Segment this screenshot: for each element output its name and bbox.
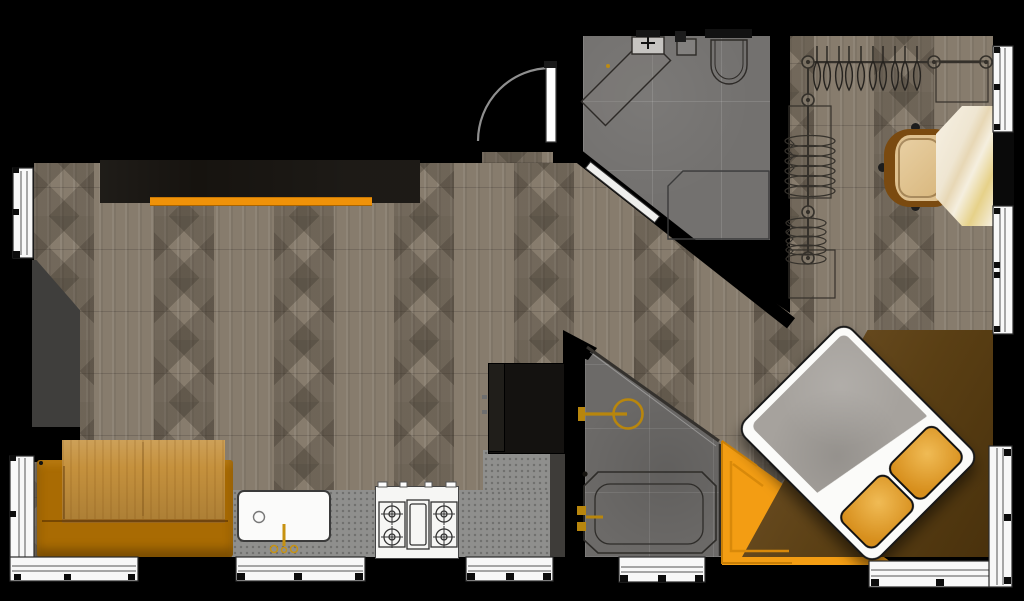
- wall-bathroom-top-right: [770, 33, 790, 241]
- wall-right-band: [993, 0, 1024, 601]
- cabinet-orange-bar: [150, 197, 372, 206]
- wall-top-left-block: [0, 0, 585, 163]
- entry-threshold: [482, 152, 553, 163]
- wall-bathroom-bottom-left: [563, 345, 585, 557]
- gas-stove: [375, 486, 459, 559]
- tall-dark-cabinet: [488, 363, 565, 454]
- wood-table: [62, 440, 225, 523]
- cabinet-door-panel: [489, 364, 505, 452]
- counter-end-strip: [550, 450, 565, 557]
- wall-top-band: [555, 0, 1024, 36]
- chair-seat: [898, 138, 941, 198]
- wall-left-band: [0, 0, 34, 601]
- kitchen-sink: [237, 490, 331, 542]
- floor-plan: [0, 0, 1024, 601]
